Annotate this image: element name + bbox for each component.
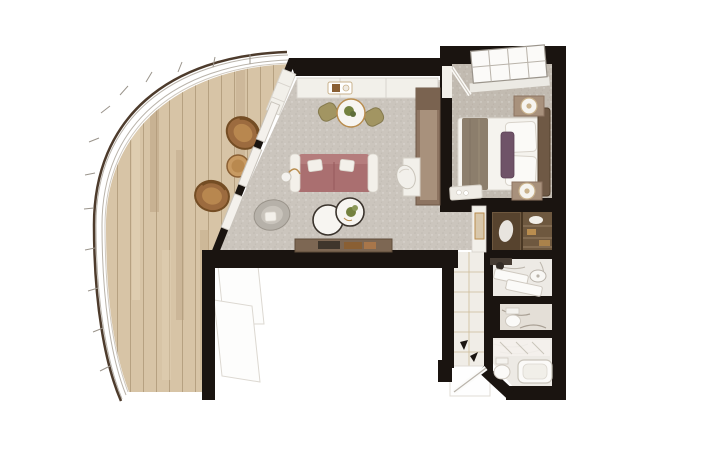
plant	[352, 205, 358, 211]
box	[539, 240, 550, 246]
entry-jamb	[438, 360, 452, 382]
bath-bottom-wall	[506, 386, 566, 400]
framed-art	[475, 213, 484, 239]
hall-wall-band	[472, 206, 486, 252]
sofa-arm	[290, 154, 300, 192]
exterior-panels	[214, 266, 264, 382]
sofa-pillow	[339, 159, 354, 172]
slipper	[456, 190, 461, 195]
nightstand	[512, 182, 542, 200]
hat	[529, 216, 543, 224]
wardrobe-bottom-wall	[484, 250, 566, 259]
sofa-arm	[368, 154, 378, 192]
accent-pillow	[501, 132, 514, 178]
nightstand	[514, 96, 544, 116]
toilet-room	[506, 308, 521, 327]
books	[344, 242, 362, 249]
living-top-wall	[289, 58, 452, 76]
tray-item	[343, 85, 349, 91]
foot-bench	[450, 185, 483, 200]
sideboard	[295, 239, 392, 252]
main-bathroom	[494, 340, 552, 383]
plant	[350, 111, 356, 117]
toilet-tank	[506, 308, 519, 314]
lower-left-wall	[202, 252, 215, 400]
sofa	[290, 154, 378, 192]
right-wall	[552, 46, 566, 392]
hall-left-wall	[442, 262, 454, 368]
wardrobe	[490, 210, 554, 254]
exterior-panel	[214, 300, 260, 382]
suite-floor-plan	[0, 0, 728, 450]
floor-plan-canvas	[0, 0, 728, 450]
books	[364, 242, 376, 249]
bedroom-bottom-wall	[440, 198, 566, 212]
cabinet-top	[416, 88, 440, 110]
living-bottom-wall	[202, 250, 458, 268]
entry-hall-floor	[454, 252, 484, 368]
bath-divider-2	[484, 330, 566, 338]
toilet-tank	[496, 358, 508, 364]
box	[527, 229, 536, 235]
bedroom-window	[467, 45, 550, 93]
slipper	[463, 190, 468, 195]
bed-throw	[462, 118, 488, 190]
chair-pillow	[265, 212, 276, 222]
tray	[318, 241, 340, 249]
toilet	[494, 365, 510, 379]
toilet	[506, 315, 521, 327]
sofa-pillow	[307, 159, 322, 172]
tray-item	[332, 84, 340, 92]
